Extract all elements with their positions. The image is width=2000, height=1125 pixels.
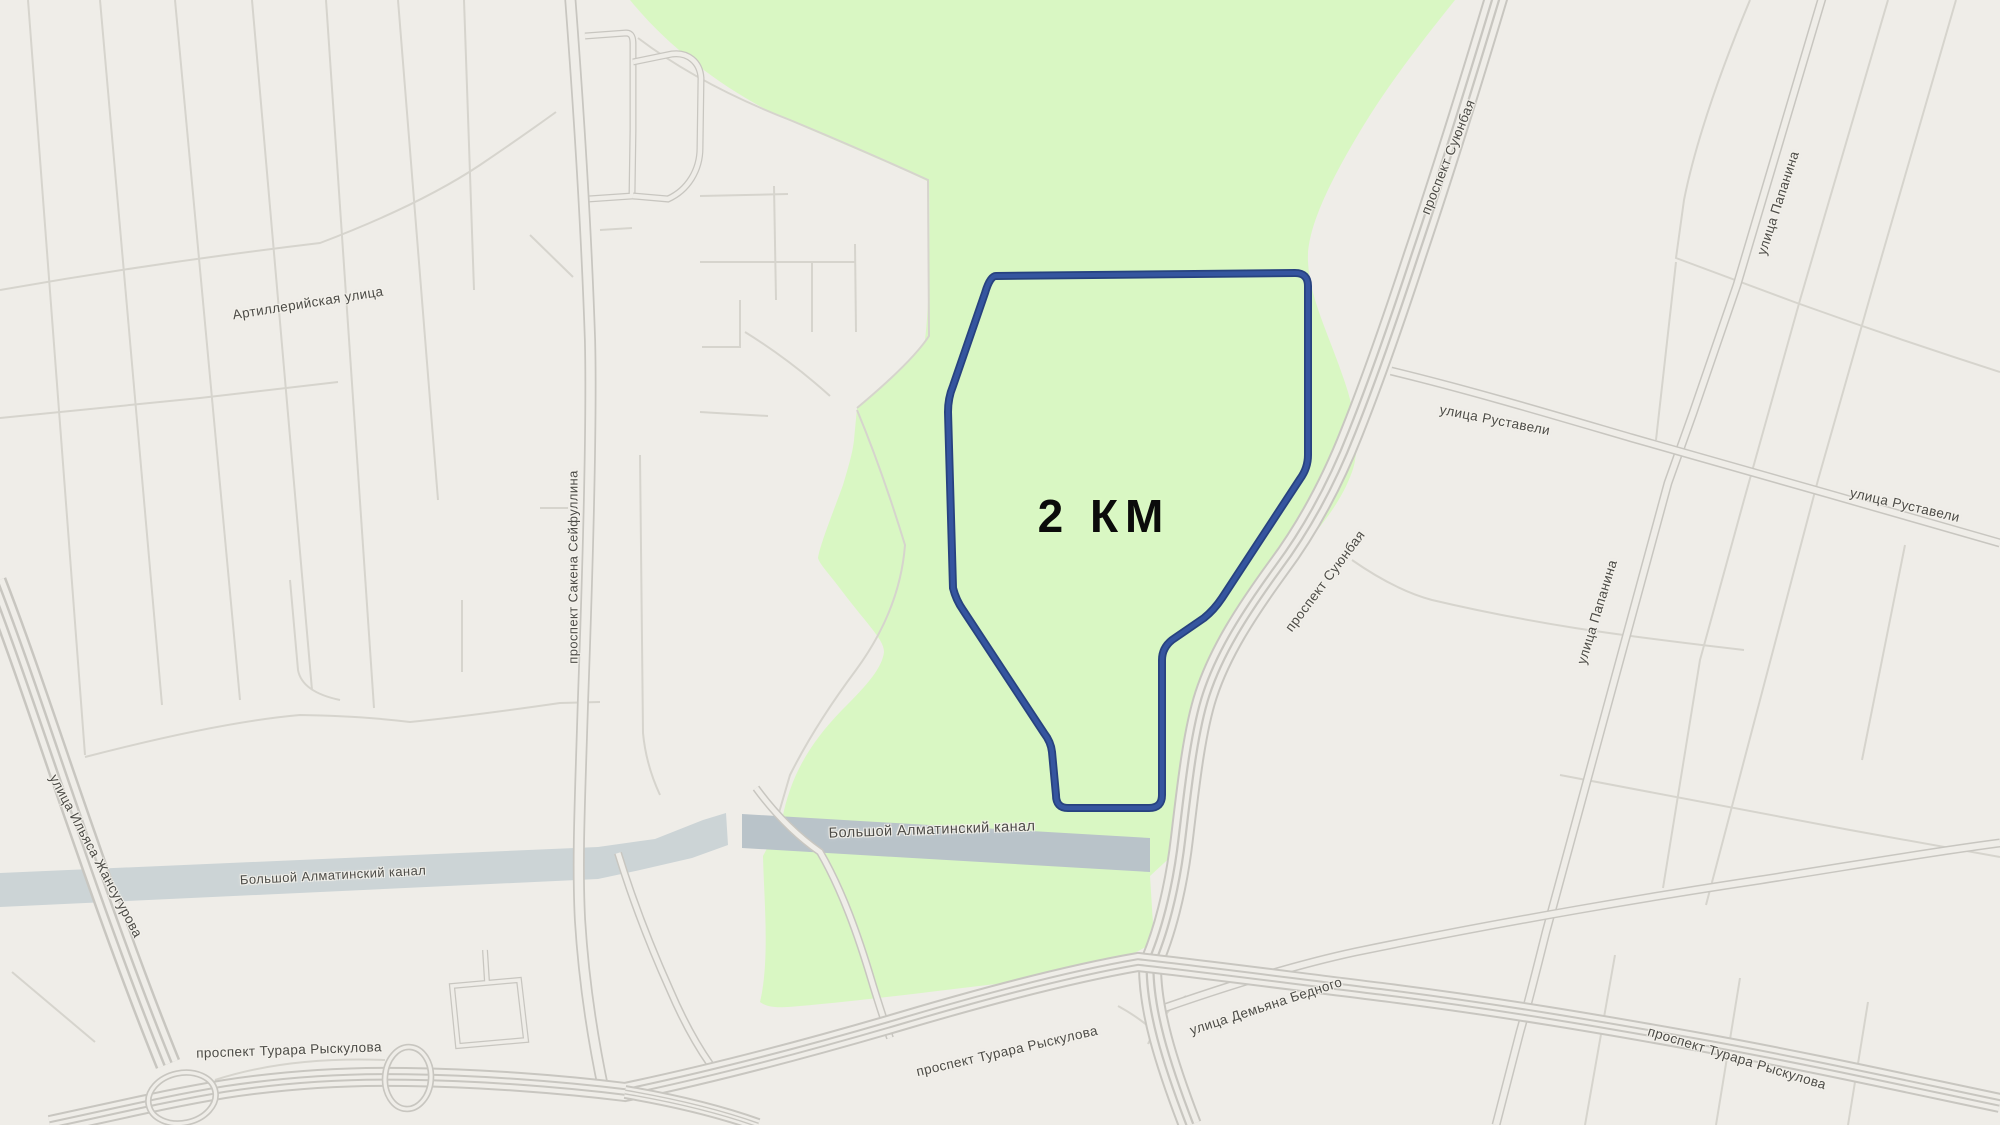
route-distance-label: 2 КМ bbox=[1038, 489, 1171, 543]
street-label-seyfullin: проспект Сакена Сейфуллина bbox=[566, 470, 581, 663]
map-image bbox=[0, 0, 2000, 1125]
map-canvas: Артиллерийская улица проспект Сакена Сей… bbox=[0, 0, 2000, 1125]
